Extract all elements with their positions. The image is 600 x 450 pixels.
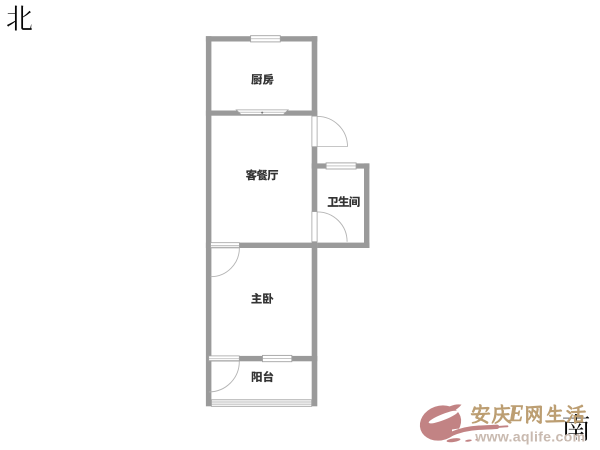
- svg-text:E: E: [508, 401, 524, 426]
- svg-text:www.aqlife.com: www.aqlife.com: [474, 429, 585, 445]
